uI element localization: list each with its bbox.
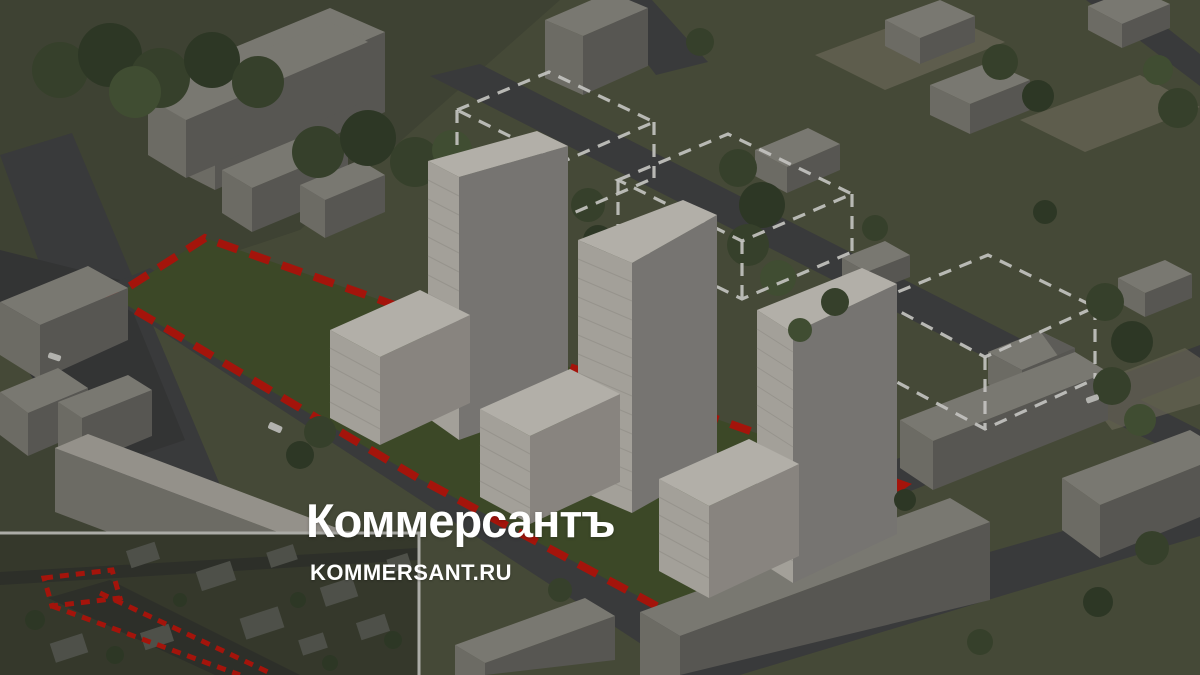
kommersant-wordmark: Коммерсантъ <box>306 497 615 544</box>
masterplan-render <box>0 0 1200 675</box>
kommersant-domain-label: KOMMERSANT.RU <box>310 562 512 584</box>
news-render-image: Коммерсантъ KOMMERSANT.RU <box>0 0 1200 675</box>
dim-overlay <box>0 0 1200 675</box>
